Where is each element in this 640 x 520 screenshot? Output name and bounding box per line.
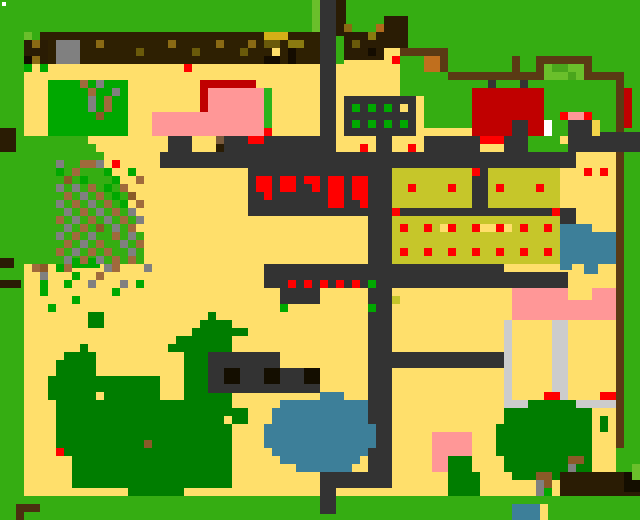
scree	[56, 168, 64, 176]
stall-row[interactable]	[504, 272, 568, 288]
tree-trunk	[568, 456, 584, 464]
stand-item	[408, 144, 416, 152]
center-tree	[200, 320, 232, 328]
crop-dot	[544, 224, 552, 232]
scree	[80, 256, 88, 264]
scree	[80, 160, 88, 168]
item-dot	[112, 160, 120, 168]
scree	[80, 208, 88, 216]
southwest-tree	[64, 352, 96, 360]
crop-dot	[552, 208, 560, 216]
market-dot	[368, 104, 376, 112]
scree	[64, 240, 72, 248]
barn-window	[600, 168, 608, 176]
scree	[88, 184, 96, 192]
shop-sign	[584, 112, 592, 120]
scree	[128, 224, 136, 232]
scree	[96, 208, 104, 216]
scree	[136, 240, 144, 248]
west-grove	[24, 144, 96, 152]
path-block	[424, 56, 440, 72]
tree-trunk-cluster	[344, 32, 384, 60]
southeast-tree	[456, 472, 480, 496]
dirt-dot	[240, 48, 248, 56]
scree	[144, 264, 152, 272]
border-log	[0, 258, 14, 268]
tree-gap	[224, 416, 232, 424]
market-dot	[384, 104, 392, 112]
stall-dot	[352, 280, 360, 288]
scree	[104, 168, 112, 176]
pond-northeast	[560, 264, 572, 270]
dirt-dot	[192, 48, 200, 56]
center-tree	[160, 400, 232, 488]
scree	[96, 224, 104, 232]
flower-dot	[152, 128, 160, 136]
dirt-dot	[248, 40, 256, 48]
center-tree	[192, 392, 232, 400]
dirt-path[interactable]	[440, 56, 448, 72]
scree	[72, 232, 80, 240]
post	[520, 80, 528, 88]
road[interactable]	[504, 136, 528, 152]
scree	[128, 208, 136, 216]
scree	[104, 184, 112, 192]
truck-wheel	[168, 136, 192, 152]
red-strip	[624, 88, 632, 128]
stall-dot	[320, 280, 328, 288]
pond-southwest	[280, 456, 360, 464]
crop-dot	[400, 248, 408, 256]
truck-stripe	[264, 88, 272, 128]
pond-southwest	[264, 424, 376, 448]
field-patch	[480, 224, 496, 232]
pink-building[interactable]	[512, 288, 616, 320]
pen-fence	[504, 320, 512, 400]
bush-dot	[368, 304, 376, 312]
truck-light	[248, 136, 264, 144]
rock-small	[536, 480, 544, 496]
dirt-dot	[32, 40, 40, 48]
stall-awning	[280, 176, 296, 192]
center-tree	[232, 408, 248, 424]
cursor-dot	[2, 2, 6, 6]
truck-axle	[216, 144, 224, 152]
grass-light-strip	[312, 0, 320, 32]
shop-sign	[560, 112, 568, 120]
road-east[interactable]	[392, 352, 504, 368]
center-tree	[176, 336, 232, 344]
crop-dot	[496, 184, 504, 192]
bush-rock	[88, 96, 96, 112]
scree	[80, 224, 88, 232]
pen-item	[600, 392, 616, 400]
stall-awning	[304, 176, 320, 184]
scree	[56, 232, 64, 240]
scree	[80, 192, 88, 200]
hedge-block	[88, 312, 104, 328]
crop-dot	[448, 184, 456, 192]
market-stand[interactable]	[336, 136, 376, 152]
crop-dot	[424, 224, 432, 232]
pond-southwest	[296, 464, 352, 472]
pond-southwest	[272, 408, 368, 424]
scree	[72, 168, 80, 176]
border-log	[0, 280, 21, 288]
pond-southwest	[280, 400, 368, 408]
scree	[72, 272, 80, 280]
bush-dot	[280, 304, 288, 312]
scree	[112, 264, 120, 272]
stall-awning	[256, 176, 272, 192]
center-tree	[232, 328, 248, 336]
southwest-tree	[96, 472, 128, 488]
stall-awning	[352, 176, 368, 200]
scree	[104, 248, 112, 256]
shop-sign	[568, 112, 584, 120]
scree	[112, 232, 120, 240]
crop-dot	[536, 184, 544, 192]
dirt-dot	[136, 48, 144, 56]
scree	[64, 256, 72, 264]
scree	[104, 200, 112, 208]
scree	[56, 184, 64, 192]
stall-awning	[264, 192, 272, 200]
scree	[128, 168, 136, 176]
sign-light	[592, 120, 600, 136]
stall-awning	[312, 184, 320, 192]
factory-building[interactable]	[208, 384, 320, 393]
sand-dot	[560, 136, 568, 144]
garden-dot	[552, 64, 568, 72]
southeast-tree	[528, 400, 576, 408]
stall-row[interactable]	[280, 288, 320, 304]
scree	[56, 216, 64, 224]
scree	[136, 176, 144, 184]
bush-dot	[24, 64, 32, 72]
item-dot	[56, 448, 64, 456]
scree	[56, 248, 64, 256]
truck-wheel	[224, 136, 248, 152]
bush-dot	[544, 488, 552, 496]
doorstep	[480, 144, 504, 152]
scree	[32, 264, 40, 272]
dirt-path[interactable]	[400, 48, 448, 56]
scree	[120, 240, 128, 248]
post	[488, 80, 496, 88]
dirt-path[interactable]	[448, 72, 544, 80]
bush-dot	[368, 280, 376, 288]
factory-building[interactable]	[208, 368, 304, 384]
scree	[136, 280, 144, 288]
scree	[64, 192, 72, 200]
bench[interactable]	[16, 512, 24, 520]
tree-trunk-cluster	[384, 16, 408, 48]
scree	[56, 160, 64, 168]
bush-trunk	[96, 112, 104, 120]
stall-dot	[336, 280, 344, 288]
southwest-tree	[96, 376, 160, 392]
bush-rock	[96, 80, 104, 88]
pen-fence	[552, 320, 568, 400]
item-dot	[184, 64, 192, 72]
rock	[56, 40, 80, 64]
dirt-path[interactable]	[584, 64, 592, 80]
grass-dot	[632, 464, 640, 480]
scree	[112, 208, 120, 216]
scree	[40, 272, 48, 280]
pond-southwest	[272, 448, 368, 456]
sign-post	[544, 120, 552, 136]
dirt-dot	[272, 48, 280, 56]
sand-pocket	[192, 488, 216, 496]
road-junction[interactable]	[320, 472, 392, 488]
bush-rock	[112, 88, 120, 96]
southwest-tree	[80, 344, 88, 352]
stump	[144, 440, 152, 448]
red-building-step	[480, 136, 504, 144]
market-dot	[368, 120, 376, 128]
truck-hood[interactable]	[152, 112, 208, 136]
bush-trunk	[104, 96, 112, 104]
bench[interactable]	[16, 504, 40, 512]
crop-dot	[520, 224, 528, 232]
border-log	[0, 128, 16, 152]
barn-window	[584, 168, 592, 176]
stall-row[interactable]	[264, 264, 504, 288]
southeast-tree	[600, 416, 608, 432]
crop-dot	[544, 248, 552, 256]
scree	[136, 200, 144, 208]
pen-item	[544, 392, 560, 400]
scree	[128, 192, 136, 200]
field-patch	[504, 224, 512, 232]
scree	[136, 216, 144, 224]
southeast-tree	[496, 424, 504, 456]
pond-southwest	[320, 392, 344, 400]
market-building[interactable]	[344, 96, 416, 136]
field-divider	[392, 208, 560, 216]
trunk-dot	[344, 24, 352, 32]
scree	[72, 296, 80, 304]
pond-northeast	[560, 224, 592, 264]
dirt-dot	[24, 56, 32, 64]
scree	[128, 232, 136, 240]
scree	[88, 200, 96, 208]
dirt-dot	[168, 40, 176, 48]
scree	[96, 272, 104, 280]
stall-dot	[288, 280, 296, 288]
scree	[56, 264, 64, 272]
center-tree	[168, 344, 232, 352]
road-exit[interactable]	[320, 488, 336, 514]
truck-axle	[216, 136, 224, 144]
scree	[72, 184, 80, 192]
stall-awning	[328, 176, 344, 208]
dirt-path[interactable]	[536, 64, 544, 80]
bush-trunk	[88, 88, 96, 96]
stand-item	[360, 144, 368, 152]
crop-dot	[424, 248, 432, 256]
scree	[40, 288, 48, 296]
crop-dot	[448, 248, 456, 256]
trunk-dot	[352, 40, 360, 48]
scree	[120, 216, 128, 224]
road-main[interactable]	[160, 152, 576, 168]
dirt-path[interactable]	[536, 56, 592, 64]
scree	[128, 248, 136, 256]
scree	[112, 192, 120, 200]
scree	[88, 280, 96, 288]
sand-dot	[540, 504, 548, 520]
trunk-dot	[376, 24, 384, 32]
southwest-tree	[48, 376, 96, 400]
crop-dot	[472, 248, 480, 256]
scree	[64, 208, 72, 216]
crop-dot	[496, 224, 504, 232]
southwest-tree	[128, 472, 160, 496]
trunk-dot	[368, 32, 376, 40]
pond-northeast	[592, 232, 616, 264]
dirt-path[interactable]	[512, 56, 520, 72]
scree	[64, 176, 72, 184]
crop-dot	[408, 184, 416, 192]
scree	[96, 160, 104, 168]
scree	[112, 224, 120, 232]
item-dot	[392, 56, 400, 64]
scree	[88, 248, 96, 256]
scree	[72, 200, 80, 208]
red-building-door[interactable]	[512, 120, 528, 136]
garden-dot	[568, 72, 576, 80]
bush-dot	[40, 64, 48, 72]
factory-window	[224, 368, 240, 384]
stall-dot	[304, 280, 312, 288]
scree	[112, 288, 120, 296]
factory-window	[264, 368, 280, 384]
market-dot	[352, 120, 360, 128]
grass-dot	[24, 32, 32, 40]
bush-trunk	[80, 80, 88, 88]
crop-field-1[interactable]	[392, 168, 472, 208]
scree	[64, 224, 72, 232]
trunk-dot	[368, 48, 376, 56]
dirt-dot	[264, 40, 280, 48]
field-dot	[392, 296, 400, 304]
dirt-path[interactable]	[592, 72, 624, 80]
pond-northeast	[584, 264, 598, 274]
crop-dot	[472, 168, 480, 176]
dirt-dot	[264, 56, 280, 64]
truck-light	[264, 128, 272, 136]
scree	[80, 240, 88, 248]
scree	[120, 200, 128, 208]
scree	[120, 280, 128, 288]
crate	[264, 32, 288, 40]
scree	[72, 216, 80, 224]
market-dot	[352, 104, 360, 112]
crop-dot	[448, 224, 456, 232]
dirt-dot	[216, 40, 224, 48]
pink-building-gap	[568, 288, 592, 300]
truck-cab[interactable]	[208, 88, 264, 136]
factory-building[interactable]	[208, 352, 264, 368]
dirt-dot	[288, 48, 296, 64]
tree-rock	[568, 464, 576, 472]
scree	[96, 256, 104, 264]
market-dot	[400, 104, 408, 112]
market-dot	[384, 120, 392, 128]
truck-rack	[200, 88, 208, 112]
scree	[128, 256, 136, 264]
southwest-tree	[56, 360, 96, 376]
scree	[88, 216, 96, 224]
grass-patch	[616, 448, 624, 472]
factory-window	[304, 368, 320, 384]
scree	[88, 232, 96, 240]
scree	[56, 200, 64, 208]
scree	[88, 160, 96, 168]
scree	[72, 248, 80, 256]
water-edge	[512, 504, 540, 520]
market-dot	[400, 120, 408, 128]
scree	[104, 264, 112, 272]
crop-dot	[392, 208, 400, 216]
bush-trunk	[104, 104, 112, 112]
truck-rack	[200, 80, 256, 88]
crop-dot	[496, 248, 504, 256]
bush-row	[48, 128, 128, 136]
scree	[40, 280, 48, 288]
red-building[interactable]	[472, 88, 544, 136]
scree	[112, 256, 120, 264]
stall-awning	[360, 200, 368, 208]
west-grove	[24, 136, 88, 144]
scree	[48, 304, 56, 312]
crop-dot	[472, 224, 480, 232]
dirt-dot	[96, 40, 104, 48]
game-map[interactable]	[0, 0, 640, 520]
scree	[64, 264, 72, 272]
crop-dot	[400, 224, 408, 232]
scree	[96, 240, 104, 248]
scree	[104, 216, 112, 224]
scree	[112, 176, 120, 184]
dirt-dot	[288, 40, 304, 48]
factory-building[interactable]	[264, 352, 280, 368]
scree	[80, 176, 88, 184]
scree	[120, 184, 128, 192]
crop-dot	[520, 248, 528, 256]
scree	[40, 264, 48, 272]
scree	[64, 280, 72, 288]
center-tree	[208, 312, 216, 320]
sand-pocket	[96, 488, 128, 496]
center-tree	[160, 488, 184, 496]
scree	[96, 192, 104, 200]
sign-base	[568, 120, 592, 136]
